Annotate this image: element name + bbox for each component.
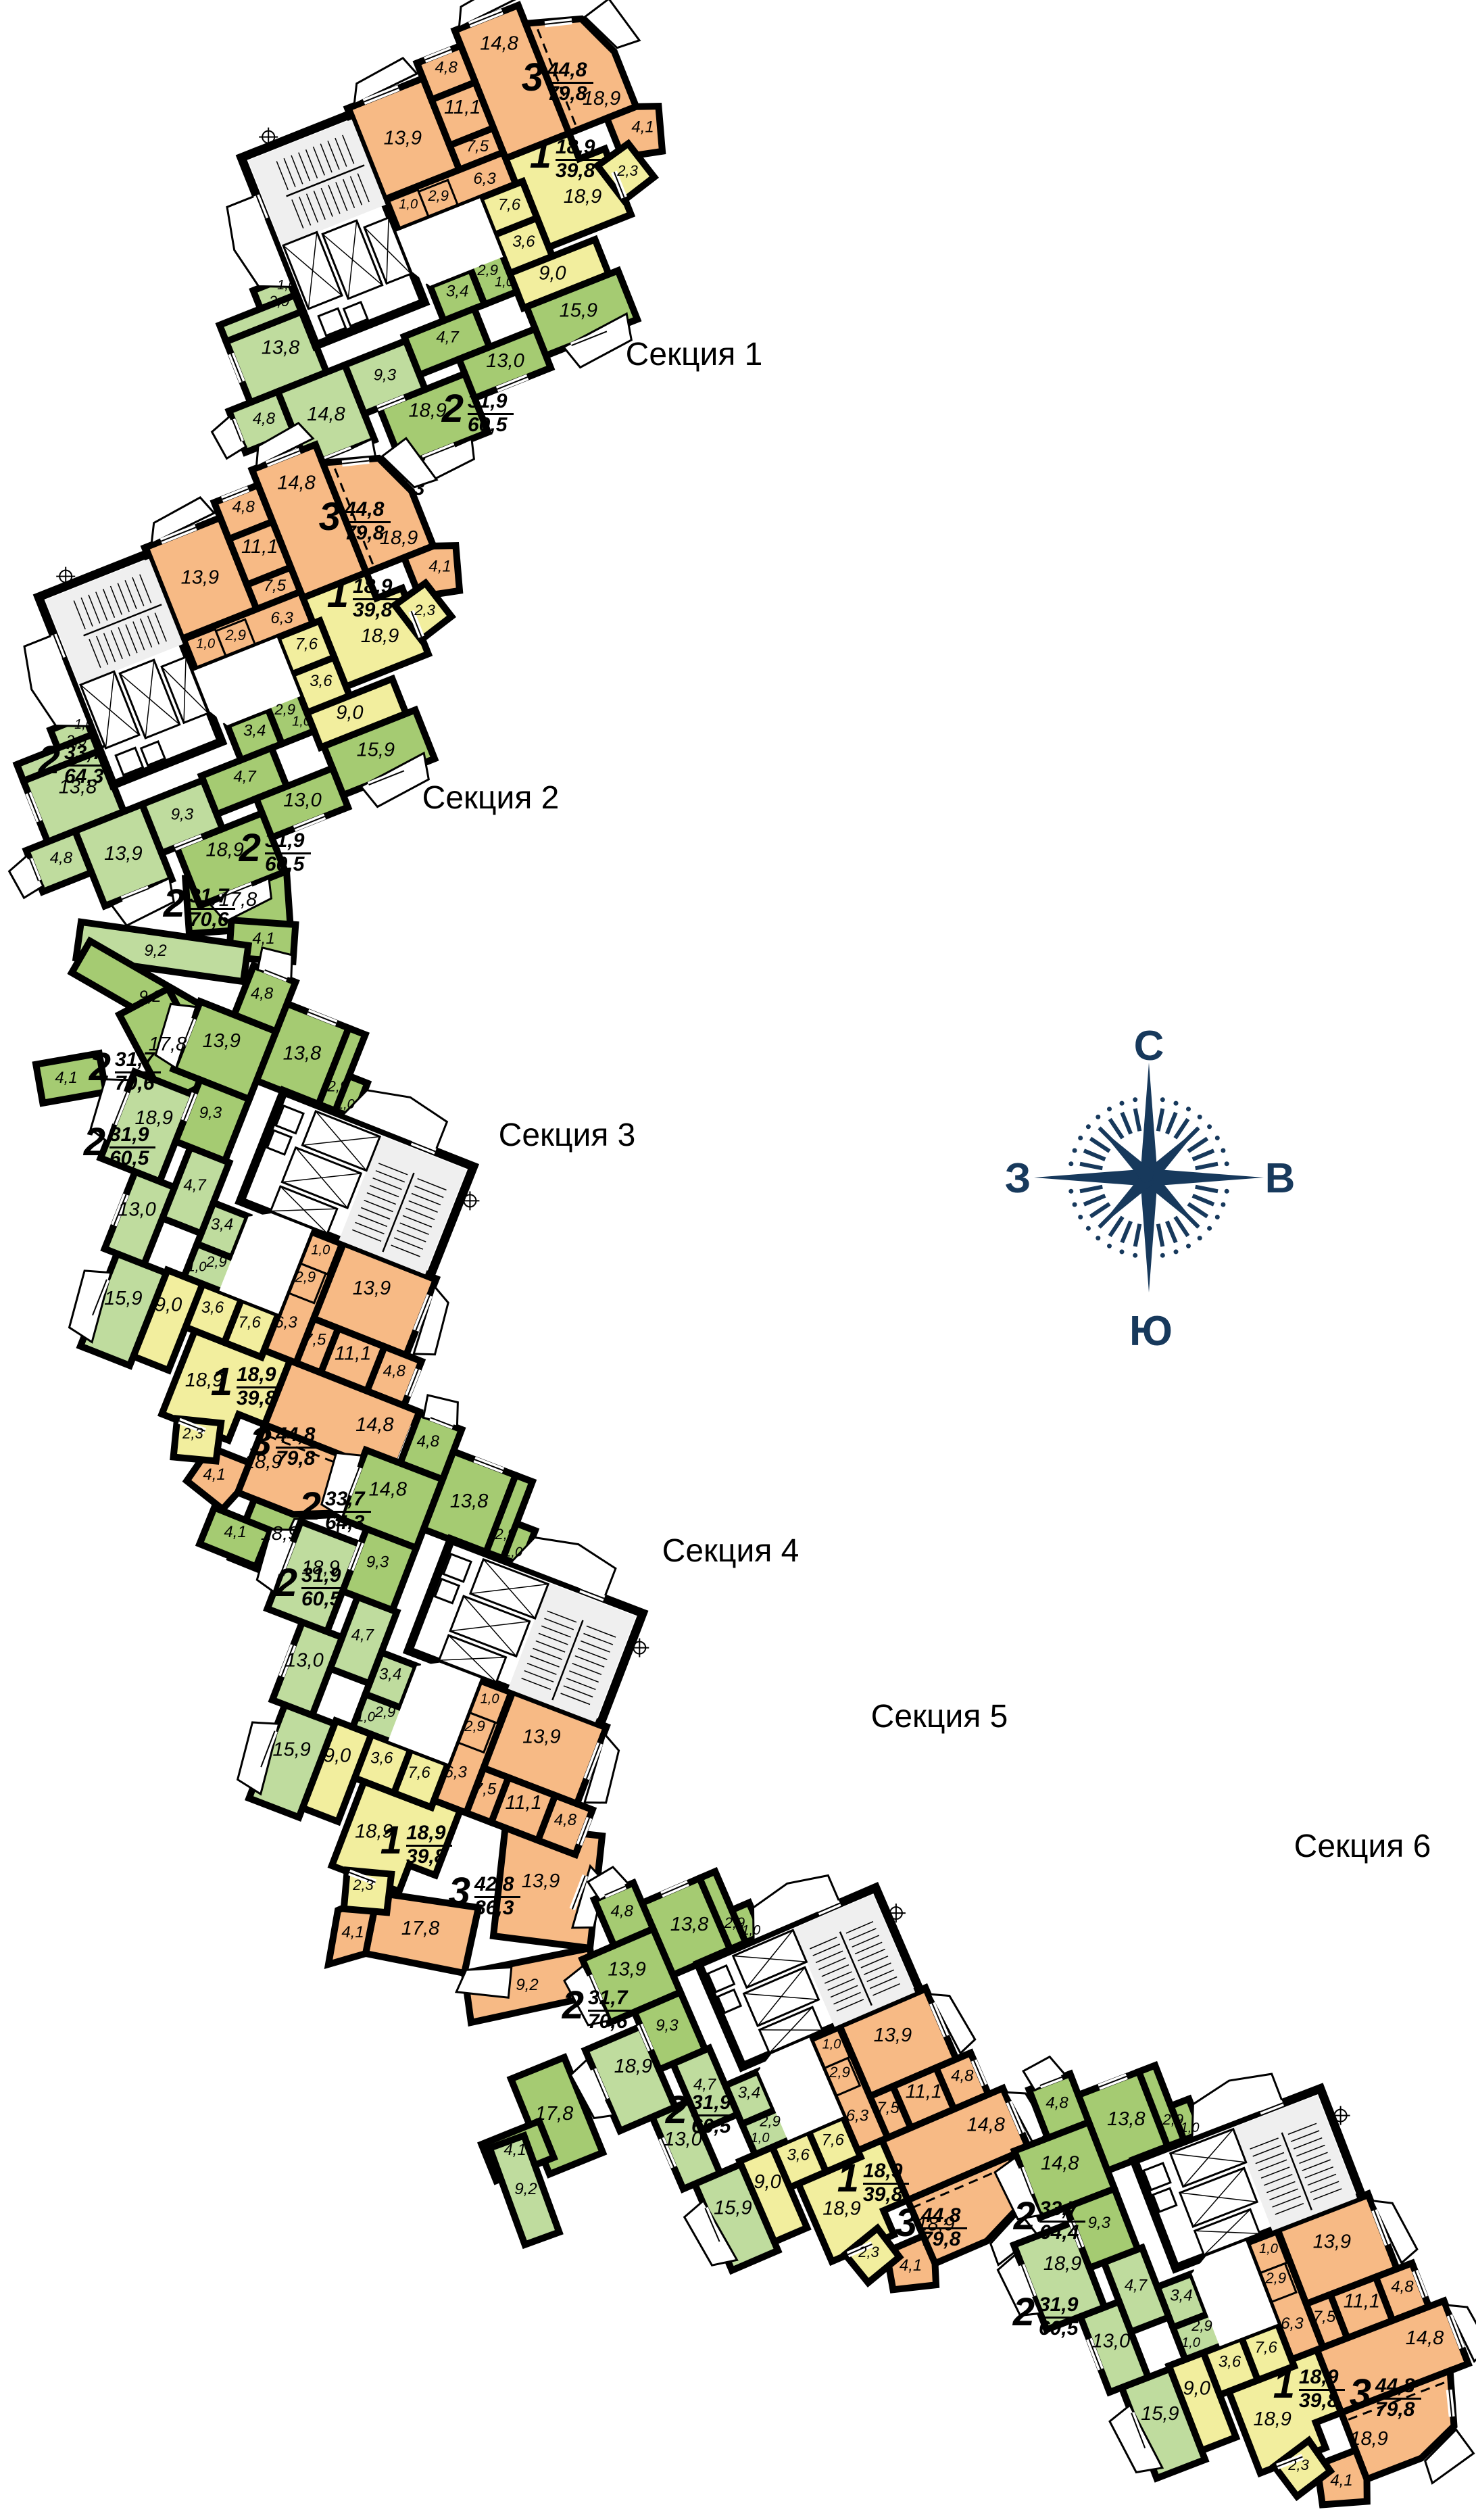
svg-text:1,0: 1,0	[292, 714, 311, 729]
svg-text:4,8: 4,8	[1391, 2277, 1414, 2296]
svg-text:44,8: 44,8	[920, 2204, 961, 2227]
svg-text:3,4: 3,4	[1170, 2287, 1192, 2305]
svg-text:39,8: 39,8	[237, 1387, 276, 1409]
svg-text:39,8: 39,8	[1299, 2390, 1339, 2412]
svg-text:1,0: 1,0	[196, 636, 215, 651]
svg-text:39,8: 39,8	[863, 2183, 903, 2206]
svg-text:14,8: 14,8	[369, 1479, 407, 1501]
svg-text:7,5: 7,5	[264, 577, 287, 595]
svg-text:14,8: 14,8	[1041, 2153, 1079, 2175]
svg-text:4,1: 4,1	[55, 1069, 77, 1087]
svg-text:18,9: 18,9	[583, 88, 620, 110]
svg-text:11,1: 11,1	[906, 2081, 942, 2102]
svg-text:18,9: 18,9	[1043, 2253, 1081, 2275]
svg-text:9,0: 9,0	[155, 1294, 182, 1316]
svg-text:9,3: 9,3	[171, 805, 194, 823]
svg-text:13,8: 13,8	[59, 777, 97, 798]
svg-text:2,3: 2,3	[414, 602, 435, 619]
svg-text:18,9: 18,9	[1299, 2366, 1339, 2388]
svg-text:11,1: 11,1	[241, 536, 278, 558]
svg-text:15,9: 15,9	[357, 739, 395, 760]
svg-text:2,9: 2,9	[205, 1253, 227, 1270]
svg-text:18,9: 18,9	[408, 400, 446, 422]
svg-text:14,8: 14,8	[480, 32, 518, 54]
svg-text:4,8: 4,8	[50, 849, 73, 867]
svg-text:2: 2	[275, 1561, 297, 1605]
svg-text:9,3: 9,3	[374, 366, 397, 384]
svg-text:64,3: 64,3	[325, 1511, 365, 1534]
svg-text:14,8: 14,8	[277, 472, 315, 493]
svg-text:9,0: 9,0	[324, 1745, 351, 1767]
svg-text:79,8: 79,8	[1375, 2398, 1415, 2421]
svg-text:13,9: 13,9	[384, 128, 422, 149]
svg-text:3: 3	[895, 2201, 917, 2245]
svg-text:4,7: 4,7	[351, 1626, 375, 1644]
svg-text:14,8: 14,8	[966, 2114, 1004, 2136]
svg-text:3: 3	[319, 495, 341, 539]
svg-text:18,9: 18,9	[1253, 2408, 1291, 2430]
svg-text:70,6: 70,6	[588, 2010, 628, 2033]
svg-text:2,3: 2,3	[616, 162, 638, 179]
svg-text:З: З	[1005, 1155, 1031, 1202]
svg-text:2,9: 2,9	[829, 2064, 850, 2081]
svg-text:2: 2	[239, 826, 261, 870]
svg-text:2: 2	[562, 1983, 584, 2027]
svg-text:11,1: 11,1	[505, 1792, 541, 1814]
svg-text:4,1: 4,1	[428, 558, 451, 576]
svg-text:44,8: 44,8	[275, 1424, 316, 1446]
svg-text:11,1: 11,1	[444, 97, 481, 118]
svg-text:1,0: 1,0	[74, 717, 93, 732]
svg-text:4,8: 4,8	[232, 498, 255, 516]
svg-text:9,3: 9,3	[199, 1104, 222, 1122]
svg-text:15,9: 15,9	[104, 1288, 142, 1309]
svg-text:18,9: 18,9	[361, 625, 399, 647]
svg-text:70,6: 70,6	[189, 908, 229, 931]
svg-text:1,0: 1,0	[356, 1710, 375, 1725]
svg-text:6,3: 6,3	[274, 1313, 297, 1332]
svg-text:18,9: 18,9	[237, 1363, 276, 1386]
svg-text:15,9: 15,9	[560, 299, 597, 321]
svg-text:С: С	[1134, 1023, 1164, 1069]
svg-text:3,6: 3,6	[512, 233, 535, 251]
svg-text:13,0: 13,0	[285, 1649, 323, 1671]
svg-text:31,9: 31,9	[265, 829, 305, 852]
svg-text:7,6: 7,6	[408, 1764, 430, 1782]
svg-text:3: 3	[1350, 2371, 1371, 2415]
svg-text:18,9: 18,9	[822, 2198, 860, 2220]
svg-text:4,8: 4,8	[435, 59, 458, 77]
svg-text:9,2: 9,2	[514, 2180, 537, 2198]
svg-text:2,9: 2,9	[495, 1526, 516, 1543]
svg-text:39,8: 39,8	[406, 1845, 446, 1868]
svg-text:6,3: 6,3	[445, 1763, 468, 1781]
svg-text:9,0: 9,0	[336, 702, 363, 724]
svg-text:2: 2	[665, 2088, 687, 2132]
svg-text:1,0: 1,0	[336, 1097, 355, 1112]
svg-text:9,2: 9,2	[516, 1976, 538, 1994]
svg-text:15,9: 15,9	[272, 1739, 310, 1761]
svg-text:2,9: 2,9	[759, 2113, 781, 2130]
svg-text:1,0: 1,0	[399, 197, 418, 212]
svg-text:Секция 2: Секция 2	[422, 780, 560, 816]
svg-text:17,8: 17,8	[535, 2103, 573, 2125]
svg-text:15,9: 15,9	[1141, 2403, 1179, 2425]
svg-text:18,9: 18,9	[185, 1370, 223, 1391]
svg-text:Секция 4: Секция 4	[662, 1533, 799, 1569]
svg-text:60,5: 60,5	[265, 853, 305, 875]
svg-text:1,0: 1,0	[311, 1243, 330, 1258]
svg-text:13,9: 13,9	[181, 567, 219, 589]
svg-text:3,4: 3,4	[738, 2083, 760, 2102]
svg-text:13,8: 13,8	[283, 1042, 321, 1064]
svg-text:18,9: 18,9	[261, 1523, 299, 1545]
svg-text:9,0: 9,0	[1183, 2378, 1210, 2400]
svg-text:18,9: 18,9	[1350, 2428, 1387, 2450]
svg-text:7,6: 7,6	[239, 1313, 262, 1332]
svg-text:31,9: 31,9	[301, 1564, 341, 1586]
svg-text:13,9: 13,9	[202, 1030, 240, 1052]
svg-text:13,9: 13,9	[608, 1959, 645, 1981]
svg-text:7,5: 7,5	[466, 137, 489, 155]
svg-text:4,1: 4,1	[203, 1465, 225, 1484]
svg-text:3: 3	[449, 1870, 470, 1914]
svg-text:44,8: 44,8	[547, 59, 587, 81]
svg-text:7,6: 7,6	[822, 2131, 845, 2149]
svg-text:31,7: 31,7	[189, 885, 230, 907]
svg-text:2,9: 2,9	[427, 187, 449, 204]
svg-text:3: 3	[250, 1420, 272, 1464]
svg-text:64,4: 64,4	[1039, 2221, 1079, 2244]
svg-text:1: 1	[1273, 2362, 1295, 2406]
svg-text:14,8: 14,8	[355, 1414, 393, 1436]
svg-text:9,2: 9,2	[139, 988, 161, 1006]
svg-text:4,1: 4,1	[503, 2141, 526, 2159]
svg-text:3,4: 3,4	[446, 282, 468, 300]
svg-text:31,7: 31,7	[588, 1987, 629, 2009]
svg-text:4,8: 4,8	[383, 1362, 406, 1380]
svg-text:2,9: 2,9	[66, 732, 87, 749]
svg-text:17,8: 17,8	[401, 1918, 439, 1939]
svg-text:42,8: 42,8	[474, 1873, 514, 1895]
svg-text:13,8: 13,8	[670, 1914, 708, 1935]
svg-text:1: 1	[837, 2156, 859, 2200]
svg-text:4,8: 4,8	[253, 410, 276, 428]
svg-text:1,0: 1,0	[481, 1692, 499, 1707]
svg-text:1,0: 1,0	[1259, 2242, 1278, 2256]
svg-text:7,6: 7,6	[295, 635, 318, 654]
svg-text:4,8: 4,8	[417, 1432, 440, 1451]
svg-text:3,4: 3,4	[379, 1666, 401, 1684]
svg-text:9,2: 9,2	[144, 942, 166, 960]
svg-text:9,3: 9,3	[1088, 2214, 1111, 2232]
svg-text:13,9: 13,9	[104, 843, 142, 865]
svg-text:39,8: 39,8	[556, 160, 595, 182]
svg-text:14,8: 14,8	[1406, 2327, 1444, 2349]
svg-text:79,8: 79,8	[547, 82, 587, 105]
svg-text:13,8: 13,8	[450, 1491, 488, 1512]
svg-text:79,8: 79,8	[921, 2228, 961, 2250]
svg-text:13,0: 13,0	[1092, 2330, 1130, 2352]
svg-text:Секция 6: Секция 6	[1294, 1828, 1431, 1864]
svg-text:4,1: 4,1	[252, 929, 274, 948]
svg-text:3,6: 3,6	[370, 1749, 393, 1768]
svg-text:4,1: 4,1	[341, 1923, 364, 1941]
svg-text:6,3: 6,3	[473, 170, 496, 188]
svg-text:2: 2	[1012, 2290, 1035, 2334]
svg-text:3,6: 3,6	[787, 2146, 810, 2164]
svg-text:9,3: 9,3	[366, 1553, 389, 1572]
svg-text:13,8: 13,8	[1107, 2108, 1145, 2130]
svg-text:4,1: 4,1	[631, 118, 654, 137]
svg-text:4,7: 4,7	[1125, 2276, 1148, 2294]
svg-text:2: 2	[83, 1120, 105, 1164]
svg-text:В: В	[1265, 1155, 1296, 1202]
svg-text:2,3: 2,3	[1287, 2456, 1309, 2473]
svg-text:2,9: 2,9	[224, 627, 246, 644]
svg-text:33,7: 33,7	[325, 1488, 366, 1510]
svg-text:18,9: 18,9	[205, 840, 243, 861]
svg-text:18,9: 18,9	[355, 1820, 393, 1842]
svg-text:13,0: 13,0	[486, 350, 524, 372]
svg-text:18,9: 18,9	[564, 186, 601, 208]
svg-text:60,5: 60,5	[109, 1147, 150, 1169]
svg-text:13,9: 13,9	[1313, 2231, 1351, 2253]
svg-text:13,9: 13,9	[874, 2025, 912, 2046]
svg-text:7,5: 7,5	[877, 2099, 900, 2117]
svg-text:1,0: 1,0	[1181, 2121, 1200, 2135]
svg-text:2,9: 2,9	[327, 1078, 349, 1095]
svg-text:44,8: 44,8	[344, 498, 385, 520]
svg-text:11,1: 11,1	[1344, 2291, 1380, 2312]
svg-text:2: 2	[1013, 2194, 1035, 2238]
svg-text:4,8: 4,8	[951, 2067, 974, 2085]
svg-text:2: 2	[89, 1045, 111, 1089]
svg-text:4,8: 4,8	[554, 1811, 577, 1829]
svg-text:7,5: 7,5	[1313, 2308, 1336, 2326]
svg-text:18,9: 18,9	[863, 2160, 903, 2182]
svg-text:13,9: 13,9	[522, 1726, 560, 1748]
svg-text:2,3: 2,3	[858, 2244, 879, 2260]
svg-text:70,6: 70,6	[115, 1072, 155, 1094]
svg-text:7,5: 7,5	[303, 1330, 326, 1349]
svg-text:18,9: 18,9	[380, 527, 418, 549]
svg-text:2: 2	[163, 881, 185, 925]
svg-text:9,0: 9,0	[539, 263, 566, 285]
svg-text:Секция 3: Секция 3	[499, 1117, 636, 1153]
svg-text:14,8: 14,8	[307, 404, 345, 425]
svg-text:86,3: 86,3	[474, 1897, 514, 1919]
svg-text:4,7: 4,7	[233, 768, 257, 786]
svg-text:4,7: 4,7	[183, 1176, 207, 1194]
svg-text:31,9: 31,9	[468, 390, 508, 412]
svg-text:13,0: 13,0	[283, 790, 321, 811]
svg-text:7,5: 7,5	[474, 1780, 497, 1798]
svg-text:3,4: 3,4	[211, 1215, 233, 1234]
svg-text:7,6: 7,6	[498, 196, 521, 214]
svg-text:Ю: Ю	[1129, 1308, 1173, 1355]
svg-text:6,3: 6,3	[1281, 2315, 1304, 2333]
svg-text:2,9: 2,9	[1191, 2317, 1212, 2334]
svg-text:39,8: 39,8	[353, 599, 393, 621]
svg-text:3,6: 3,6	[1219, 2352, 1241, 2371]
svg-text:15,9: 15,9	[714, 2197, 752, 2219]
svg-text:1: 1	[530, 132, 551, 176]
svg-text:4,8: 4,8	[1045, 2094, 1068, 2112]
svg-text:2: 2	[38, 738, 60, 782]
svg-text:33,7: 33,7	[1039, 2198, 1080, 2220]
svg-text:2,9: 2,9	[464, 1718, 485, 1735]
svg-text:60,5: 60,5	[301, 1588, 342, 1610]
svg-text:4,1: 4,1	[900, 2256, 922, 2275]
svg-text:3: 3	[522, 55, 543, 99]
svg-text:1,0: 1,0	[1181, 2335, 1200, 2350]
svg-text:2: 2	[299, 1484, 321, 1528]
svg-text:18,9: 18,9	[556, 136, 595, 158]
svg-text:2,3: 2,3	[352, 1876, 374, 1893]
svg-text:13,9: 13,9	[522, 1870, 560, 1892]
svg-text:18,9: 18,9	[614, 2056, 652, 2077]
svg-text:6,3: 6,3	[270, 609, 293, 627]
svg-text:1,0: 1,0	[741, 1923, 760, 1938]
svg-text:Секция 5: Секция 5	[871, 1699, 1008, 1735]
svg-text:1,0: 1,0	[277, 278, 296, 293]
svg-text:2,9: 2,9	[1265, 2269, 1287, 2286]
svg-text:60,5: 60,5	[691, 2115, 732, 2137]
svg-text:60,5: 60,5	[1039, 2317, 1079, 2340]
svg-text:31,9: 31,9	[1039, 2294, 1079, 2316]
svg-text:4,1: 4,1	[1330, 2471, 1352, 2490]
svg-text:Секция 1: Секция 1	[626, 337, 763, 372]
svg-text:13,0: 13,0	[118, 1199, 155, 1221]
svg-text:1,0: 1,0	[188, 1259, 207, 1274]
svg-text:18,9: 18,9	[353, 575, 393, 598]
svg-text:9,3: 9,3	[656, 2016, 679, 2035]
svg-text:2,3: 2,3	[182, 1425, 203, 1442]
svg-text:31,9: 31,9	[691, 2091, 731, 2114]
svg-text:60,5: 60,5	[468, 414, 508, 436]
svg-text:3,6: 3,6	[201, 1299, 224, 1317]
svg-text:7,6: 7,6	[1255, 2339, 1278, 2357]
svg-text:4,8: 4,8	[251, 985, 274, 1003]
svg-text:3,4: 3,4	[243, 721, 266, 740]
svg-text:2,9: 2,9	[374, 1703, 396, 1720]
svg-text:44,8: 44,8	[1375, 2375, 1415, 2397]
svg-text:1,0: 1,0	[503, 1545, 522, 1560]
svg-text:11,1: 11,1	[335, 1343, 371, 1365]
svg-text:4,8: 4,8	[611, 1902, 634, 1920]
svg-text:18,9: 18,9	[406, 1822, 446, 1844]
svg-text:13,8: 13,8	[262, 337, 299, 359]
svg-text:6,3: 6,3	[846, 2107, 869, 2125]
svg-text:4,1: 4,1	[224, 1523, 246, 1541]
svg-text:9,0: 9,0	[754, 2171, 781, 2193]
svg-text:79,8: 79,8	[276, 1447, 316, 1470]
svg-text:79,8: 79,8	[345, 522, 385, 544]
svg-text:2,9: 2,9	[295, 1268, 316, 1285]
svg-text:2,9: 2,9	[268, 293, 290, 310]
svg-text:1: 1	[327, 572, 349, 616]
svg-text:31,7: 31,7	[115, 1048, 155, 1071]
svg-text:1,0: 1,0	[822, 2037, 841, 2052]
svg-text:13,9: 13,9	[353, 1278, 391, 1299]
svg-text:31,9: 31,9	[109, 1123, 149, 1146]
svg-text:2: 2	[441, 387, 464, 431]
svg-text:4,7: 4,7	[436, 329, 460, 347]
svg-text:3,6: 3,6	[310, 672, 333, 690]
svg-text:1,0: 1,0	[495, 274, 514, 289]
svg-text:1,0: 1,0	[751, 2131, 770, 2146]
